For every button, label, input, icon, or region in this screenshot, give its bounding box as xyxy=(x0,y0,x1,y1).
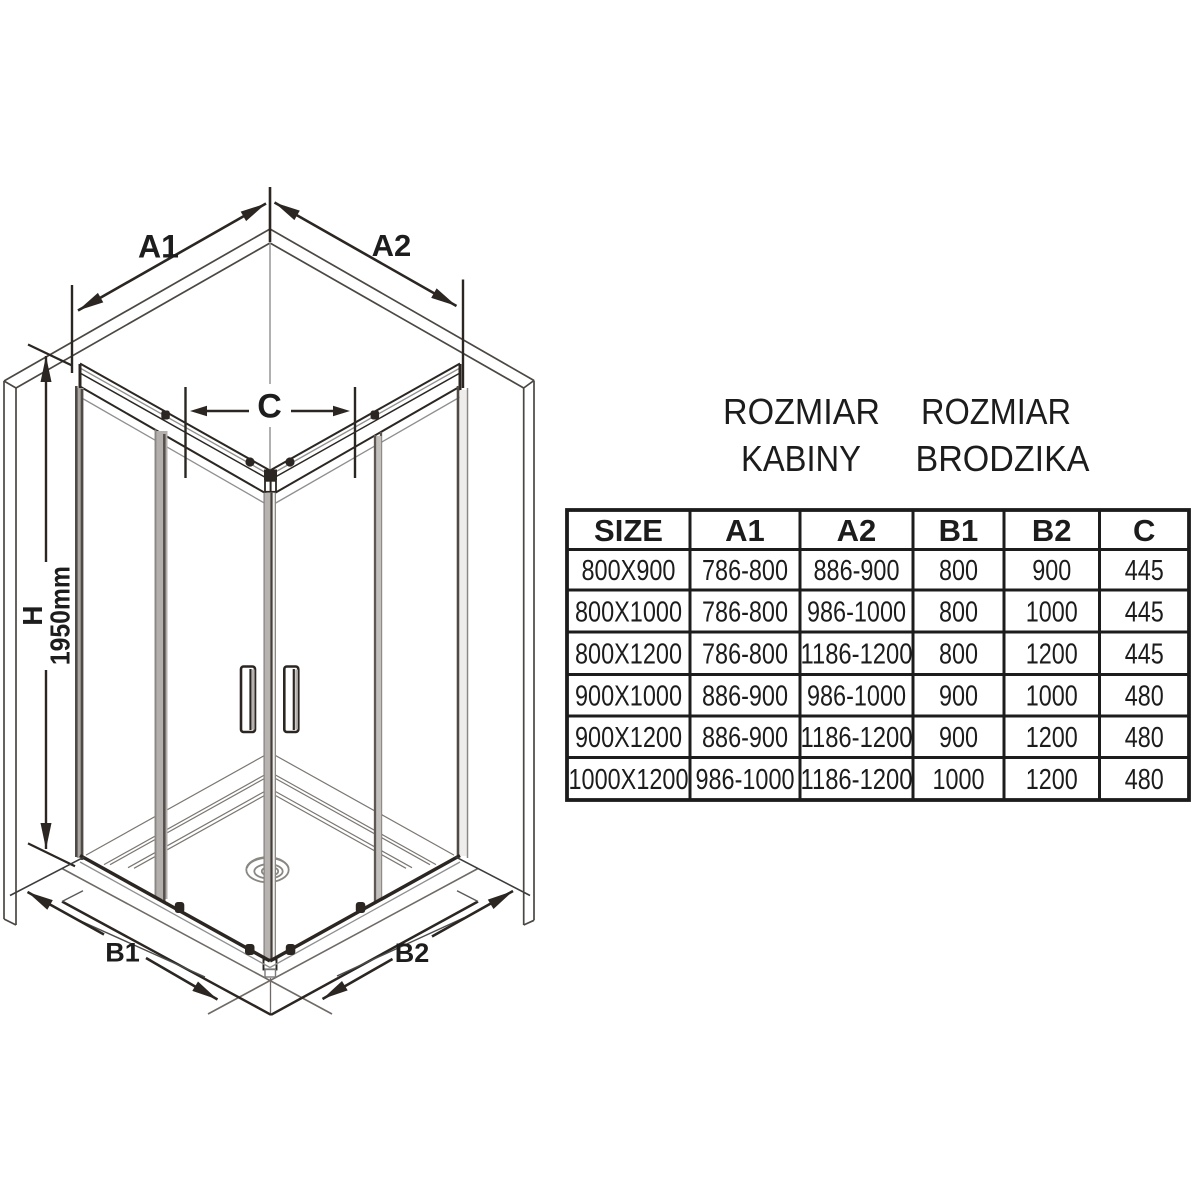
svg-text:900: 900 xyxy=(939,681,978,713)
svg-text:BRODZIKA: BRODZIKA xyxy=(916,438,1090,479)
svg-text:1200: 1200 xyxy=(1026,764,1078,796)
svg-text:800: 800 xyxy=(939,555,978,587)
svg-text:480: 480 xyxy=(1125,722,1164,754)
svg-text:445: 445 xyxy=(1125,639,1164,671)
svg-text:900: 900 xyxy=(939,722,978,754)
svg-text:986-1000: 986-1000 xyxy=(807,596,906,628)
svg-text:786-800: 786-800 xyxy=(702,555,788,587)
svg-text:1186-1200: 1186-1200 xyxy=(801,722,913,754)
svg-text:A2: A2 xyxy=(372,228,412,263)
svg-text:800X1200: 800X1200 xyxy=(575,639,682,671)
svg-text:B2: B2 xyxy=(395,938,430,968)
svg-text:1000: 1000 xyxy=(933,764,985,796)
svg-text:KABINY: KABINY xyxy=(741,438,861,479)
svg-text:ROZMIAR: ROZMIAR xyxy=(723,391,880,432)
svg-text:800: 800 xyxy=(939,639,978,671)
svg-text:886-900: 886-900 xyxy=(702,722,788,754)
svg-text:1000X1200: 1000X1200 xyxy=(569,764,689,796)
svg-text:ROZMIAR: ROZMIAR xyxy=(921,391,1071,432)
svg-text:B2: B2 xyxy=(1032,513,1072,548)
svg-text:1200: 1200 xyxy=(1026,722,1078,754)
svg-text:A1: A1 xyxy=(725,513,765,548)
svg-text:480: 480 xyxy=(1125,764,1164,796)
svg-text:B1: B1 xyxy=(939,513,979,548)
svg-text:1186-1200: 1186-1200 xyxy=(801,764,913,796)
svg-text:B1: B1 xyxy=(105,938,140,968)
svg-text:1950mm: 1950mm xyxy=(45,566,76,665)
svg-text:H: H xyxy=(17,605,48,625)
svg-text:480: 480 xyxy=(1125,681,1164,713)
svg-text:900: 900 xyxy=(1032,555,1071,587)
svg-text:1000: 1000 xyxy=(1026,681,1078,713)
svg-text:800: 800 xyxy=(939,596,978,628)
svg-text:1000: 1000 xyxy=(1026,596,1078,628)
svg-text:C: C xyxy=(1133,513,1155,548)
svg-text:A2: A2 xyxy=(837,513,877,548)
svg-text:986-1000: 986-1000 xyxy=(807,681,906,713)
svg-text:886-900: 886-900 xyxy=(702,681,788,713)
svg-text:786-800: 786-800 xyxy=(702,596,788,628)
svg-text:SIZE: SIZE xyxy=(594,513,663,548)
svg-text:900X1000: 900X1000 xyxy=(575,681,682,713)
svg-text:800X1000: 800X1000 xyxy=(575,596,682,628)
svg-text:786-800: 786-800 xyxy=(702,639,788,671)
svg-text:1200: 1200 xyxy=(1026,639,1078,671)
svg-text:445: 445 xyxy=(1125,596,1164,628)
svg-text:C: C xyxy=(257,388,282,426)
svg-text:445: 445 xyxy=(1125,555,1164,587)
svg-text:900X1200: 900X1200 xyxy=(575,722,682,754)
svg-text:A1: A1 xyxy=(138,229,179,265)
svg-text:986-1000: 986-1000 xyxy=(696,764,795,796)
svg-text:886-900: 886-900 xyxy=(814,555,900,587)
svg-text:800X900: 800X900 xyxy=(582,555,676,587)
svg-text:1186-1200: 1186-1200 xyxy=(801,639,913,671)
